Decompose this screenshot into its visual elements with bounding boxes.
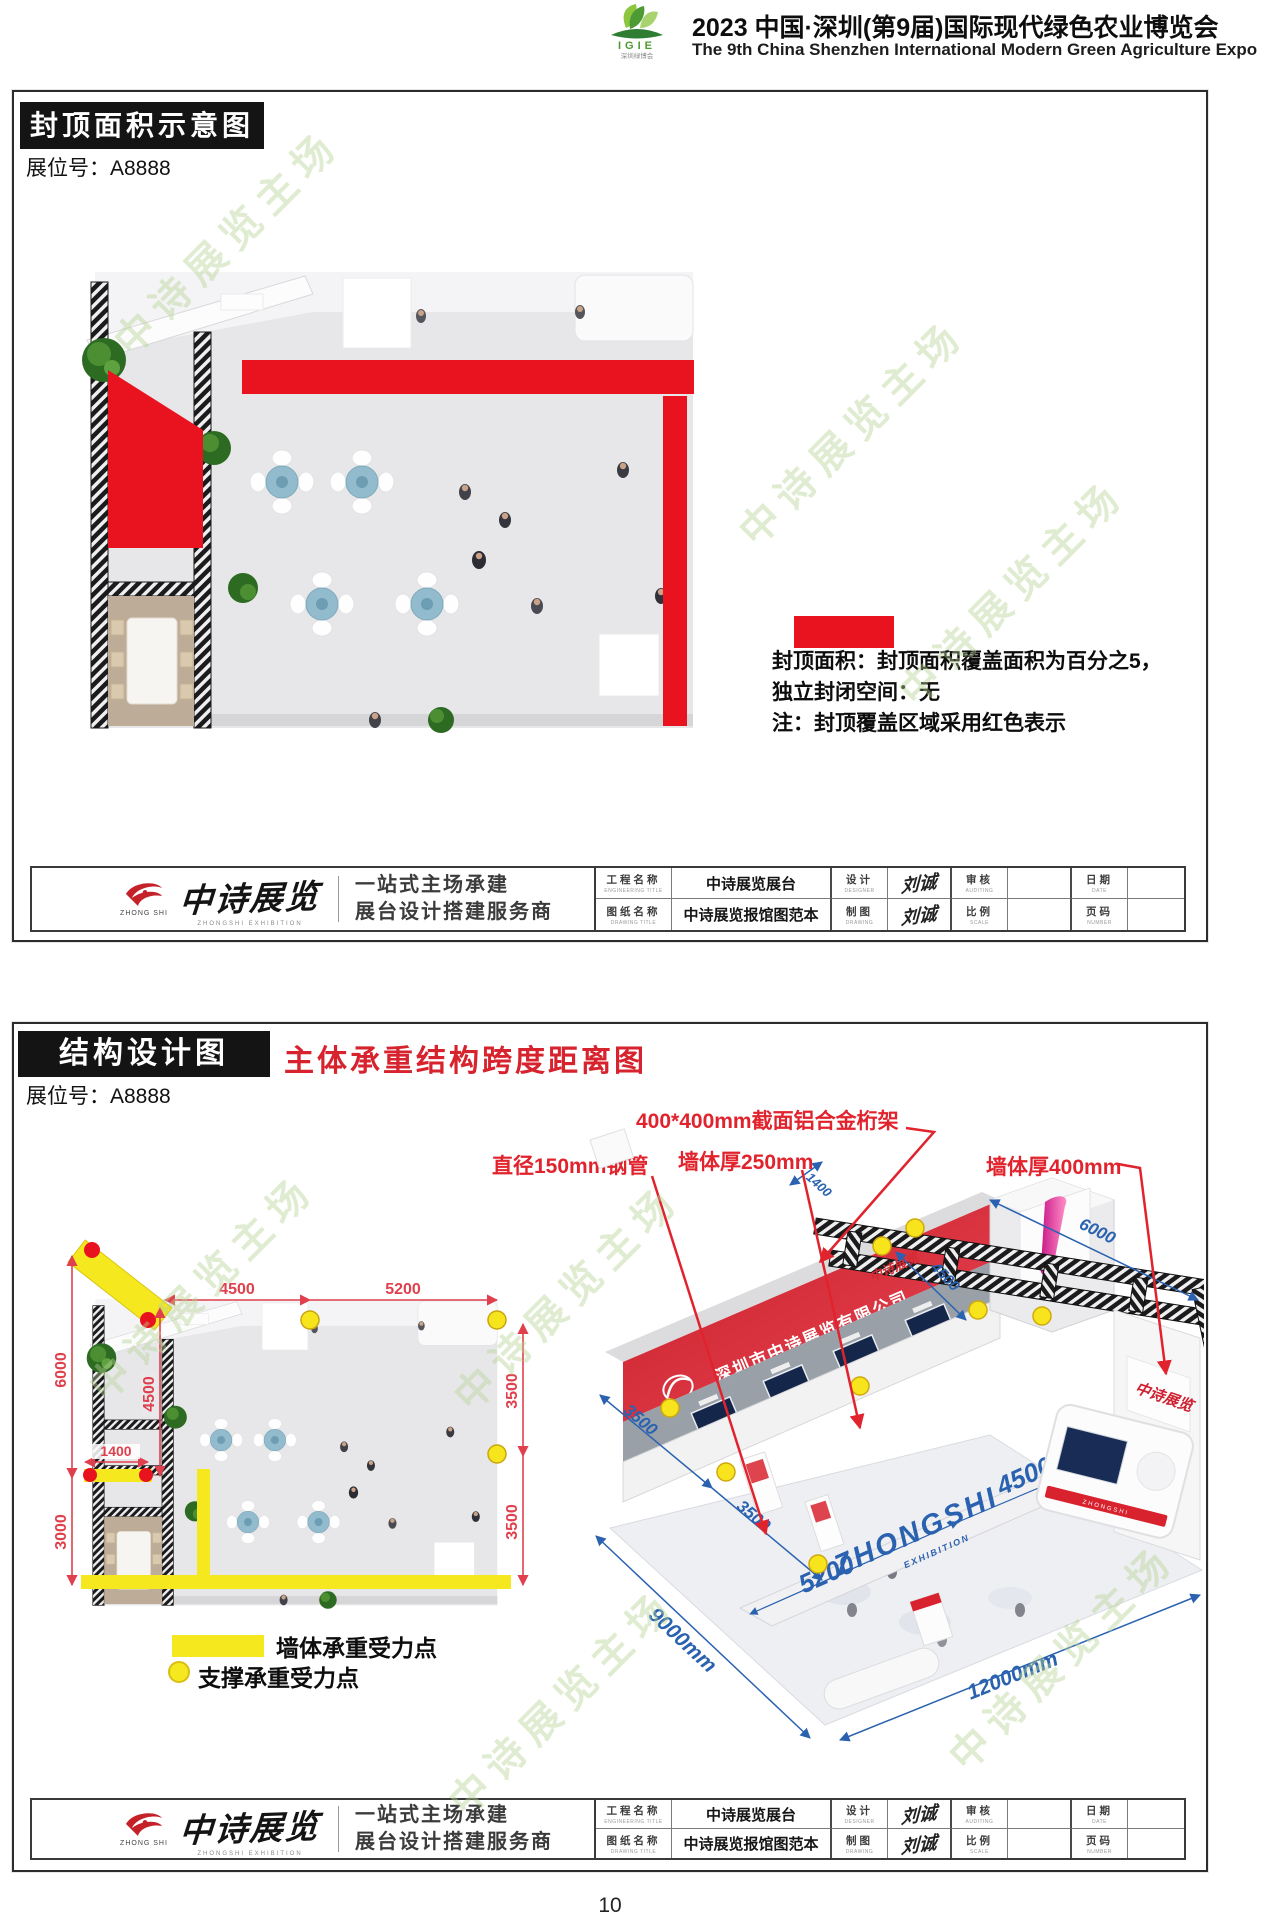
cell-label-drawing: 制图DRAWING [832,1829,888,1858]
cell-label-number: 页码NUMBER [1072,1829,1128,1858]
cell-label-auditing: 审核AUDITING [952,1800,1008,1829]
legend-support-label: 支撑承重受力点 [198,1659,359,1693]
cell-value-scale [1008,1829,1072,1858]
roof-legend-line2: 独立封闭空间：无 [772,677,1162,708]
brand-name-block: 中诗展览 ZHONGSHI EXHIBITION [180,872,320,927]
brand-divider [338,876,339,922]
cell-label-scale: 比例SCALE [952,899,1008,930]
roof-legend-line1: 封顶面积：封顶面积覆盖面积为百分之5， [772,646,1162,677]
cell-label-date: 日期DATE [1072,1800,1128,1829]
cell-label-designer: 设计DESIGNER [832,1800,888,1829]
brand-calligraphy: 中诗展览 [178,1799,322,1852]
dim-6000-left: 6000 [53,1352,70,1388]
roof-legend-swatch [794,616,894,648]
cell-label-drawing: 制图DRAWING [832,899,888,930]
dim-1400: 1400 [100,1443,131,1459]
slogan-line2: 展台设计搭建服务商 [355,1829,553,1856]
roof-plan-figure [75,220,715,740]
dim-4500-top: 4500 [219,1281,255,1298]
cell-label-scale: 比例SCALE [952,1829,1008,1858]
cell-label-engineering: 工程名称ENGINEERING TITLE [596,868,672,899]
brand-slogan: 一站式主场承建 展台设计搭建服务商 [355,872,553,926]
cell-label-designer: 设计DESIGNER [832,868,888,899]
expo-logo: IGIE 深圳绿博会 [605,1,669,61]
cell-value-engineering: 中诗展览展台 [672,868,832,899]
cell-value-drawing: 刘诚 [888,1829,952,1858]
legend-wall-swatch [172,1635,264,1657]
dim-3500-right-top: 3500 [504,1373,521,1409]
title-block: ZHONG SHI 中诗展览 ZHONGSHI EXHIBITION 一站式主场… [30,866,1186,932]
brand-subtext: ZHONGSHI EXHIBITION [197,1851,302,1857]
legend-wall-label: 墙体承重受力点 [276,1629,437,1663]
dim-4500-inner: 4500 [141,1376,158,1412]
structure-plan-view: 4500 5200 6000 3000 4500 3500 3500 1400 [53,1240,523,1609]
cell-label-number: 页码NUMBER [1072,899,1128,930]
brand-calligraphy: 中诗展览 [178,869,322,922]
cell-value-designer: 刘诚 [888,1800,952,1829]
zhongshi-logo: ZHONG SHI [118,878,170,920]
brand-name-block: 中诗展览 ZHONGSHI EXHIBITION [180,1802,320,1857]
zhongshi-logo: ZHONG SHI [118,1808,170,1850]
dim-5200-top: 5200 [385,1281,421,1298]
slogan-line1: 一站式主场承建 [355,872,553,899]
cell-value-auditing [1008,1800,1072,1829]
brand-subtext: ZHONGSHI EXHIBITION [197,921,302,927]
zhongshi-logo-text: ZHONG SHI [120,910,168,917]
panel2-title: 结构设计图 [18,1031,270,1077]
cell-value-auditing [1008,868,1072,899]
slogan-line1: 一站式主场承建 [355,1802,553,1829]
brand-slogan: 一站式主场承建 展台设计搭建服务商 [355,1802,553,1856]
cell-value-designer: 刘诚 [888,868,952,899]
cell-label-drawing-title: 图纸名称DRAWING TITLE [596,899,672,930]
title-block-table-2: 工程名称ENGINEERING TITLE 中诗展览展台 设计DESIGNER … [594,1800,1184,1858]
cell-value-number [1128,1829,1184,1858]
title-block-brand: ZHONG SHI 中诗展览 ZHONGSHI EXHIBITION 一站式主场… [32,868,594,930]
zhongshi-logo-text: ZHONG SHI [120,1840,168,1847]
cell-value-drawing: 刘诚 [888,899,952,930]
cell-label-date: 日期DATE [1072,868,1128,899]
panel1-title: 封顶面积示意图 [20,102,264,149]
cell-label-auditing: 审核AUDITING [952,868,1008,899]
title-block-table: 工程名称ENGINEERING TITLE 中诗展览展台 设计DESIGNER … [594,868,1184,930]
title-block-2: ZHONG SHI 中诗展览 ZHONGSHI EXHIBITION 一站式主场… [30,1798,1186,1860]
roof-legend-line3: 注：封顶覆盖区域采用红色表示 [772,708,1162,739]
page-number: 10 [0,1894,1220,1918]
slogan-line2: 展台设计搭建服务商 [355,899,553,926]
page: IGIE 深圳绿博会 2023 中国·深圳(第9届)国际现代绿色农业博览会 Th… [0,0,1280,1930]
title-block-brand-2: ZHONG SHI 中诗展览 ZHONGSHI EXHIBITION 一站式主场… [32,1800,594,1858]
cell-value-date [1128,868,1184,899]
logo-arc [611,29,663,39]
cell-value-engineering: 中诗展览展台 [672,1800,832,1829]
dim-3500-right-bottom: 3500 [504,1504,521,1540]
dim-3000-left: 3000 [53,1514,70,1550]
expo-title-cn: 2023 中国·深圳(第9届)国际现代绿色农业博览会 [692,8,1218,44]
brand-divider [338,1806,339,1852]
panel2-subtitle: 主体承重结构跨度距离图 [284,1036,647,1080]
cell-value-scale [1008,899,1072,930]
panel1-booth-number: 展位号：A8888 [26,152,171,182]
cell-label-engineering: 工程名称ENGINEERING TITLE [596,1800,672,1829]
logo-acronym: IGIE [618,40,656,52]
cell-value-drawing-title: 中诗展览报馆图范本 [672,899,832,930]
cell-value-drawing-title: 中诗展览报馆图范本 [672,1829,832,1858]
cell-value-date [1128,1800,1184,1829]
legend-support-swatch [168,1661,190,1683]
cell-value-number [1128,899,1184,930]
structure-iso-view: ZHONG SHI 深圳市中诗展览有限公司 [590,1129,1204,1740]
roof-legend-text: 封顶面积：封顶面积覆盖面积为百分之5， 独立封闭空间：无 注：封顶覆盖区域采用红… [772,646,1162,739]
expo-title-en: The 9th China Shenzhen International Mod… [692,40,1257,60]
cell-label-drawing-title: 图纸名称DRAWING TITLE [596,1829,672,1858]
logo-caption: 深圳绿博会 [621,51,654,60]
